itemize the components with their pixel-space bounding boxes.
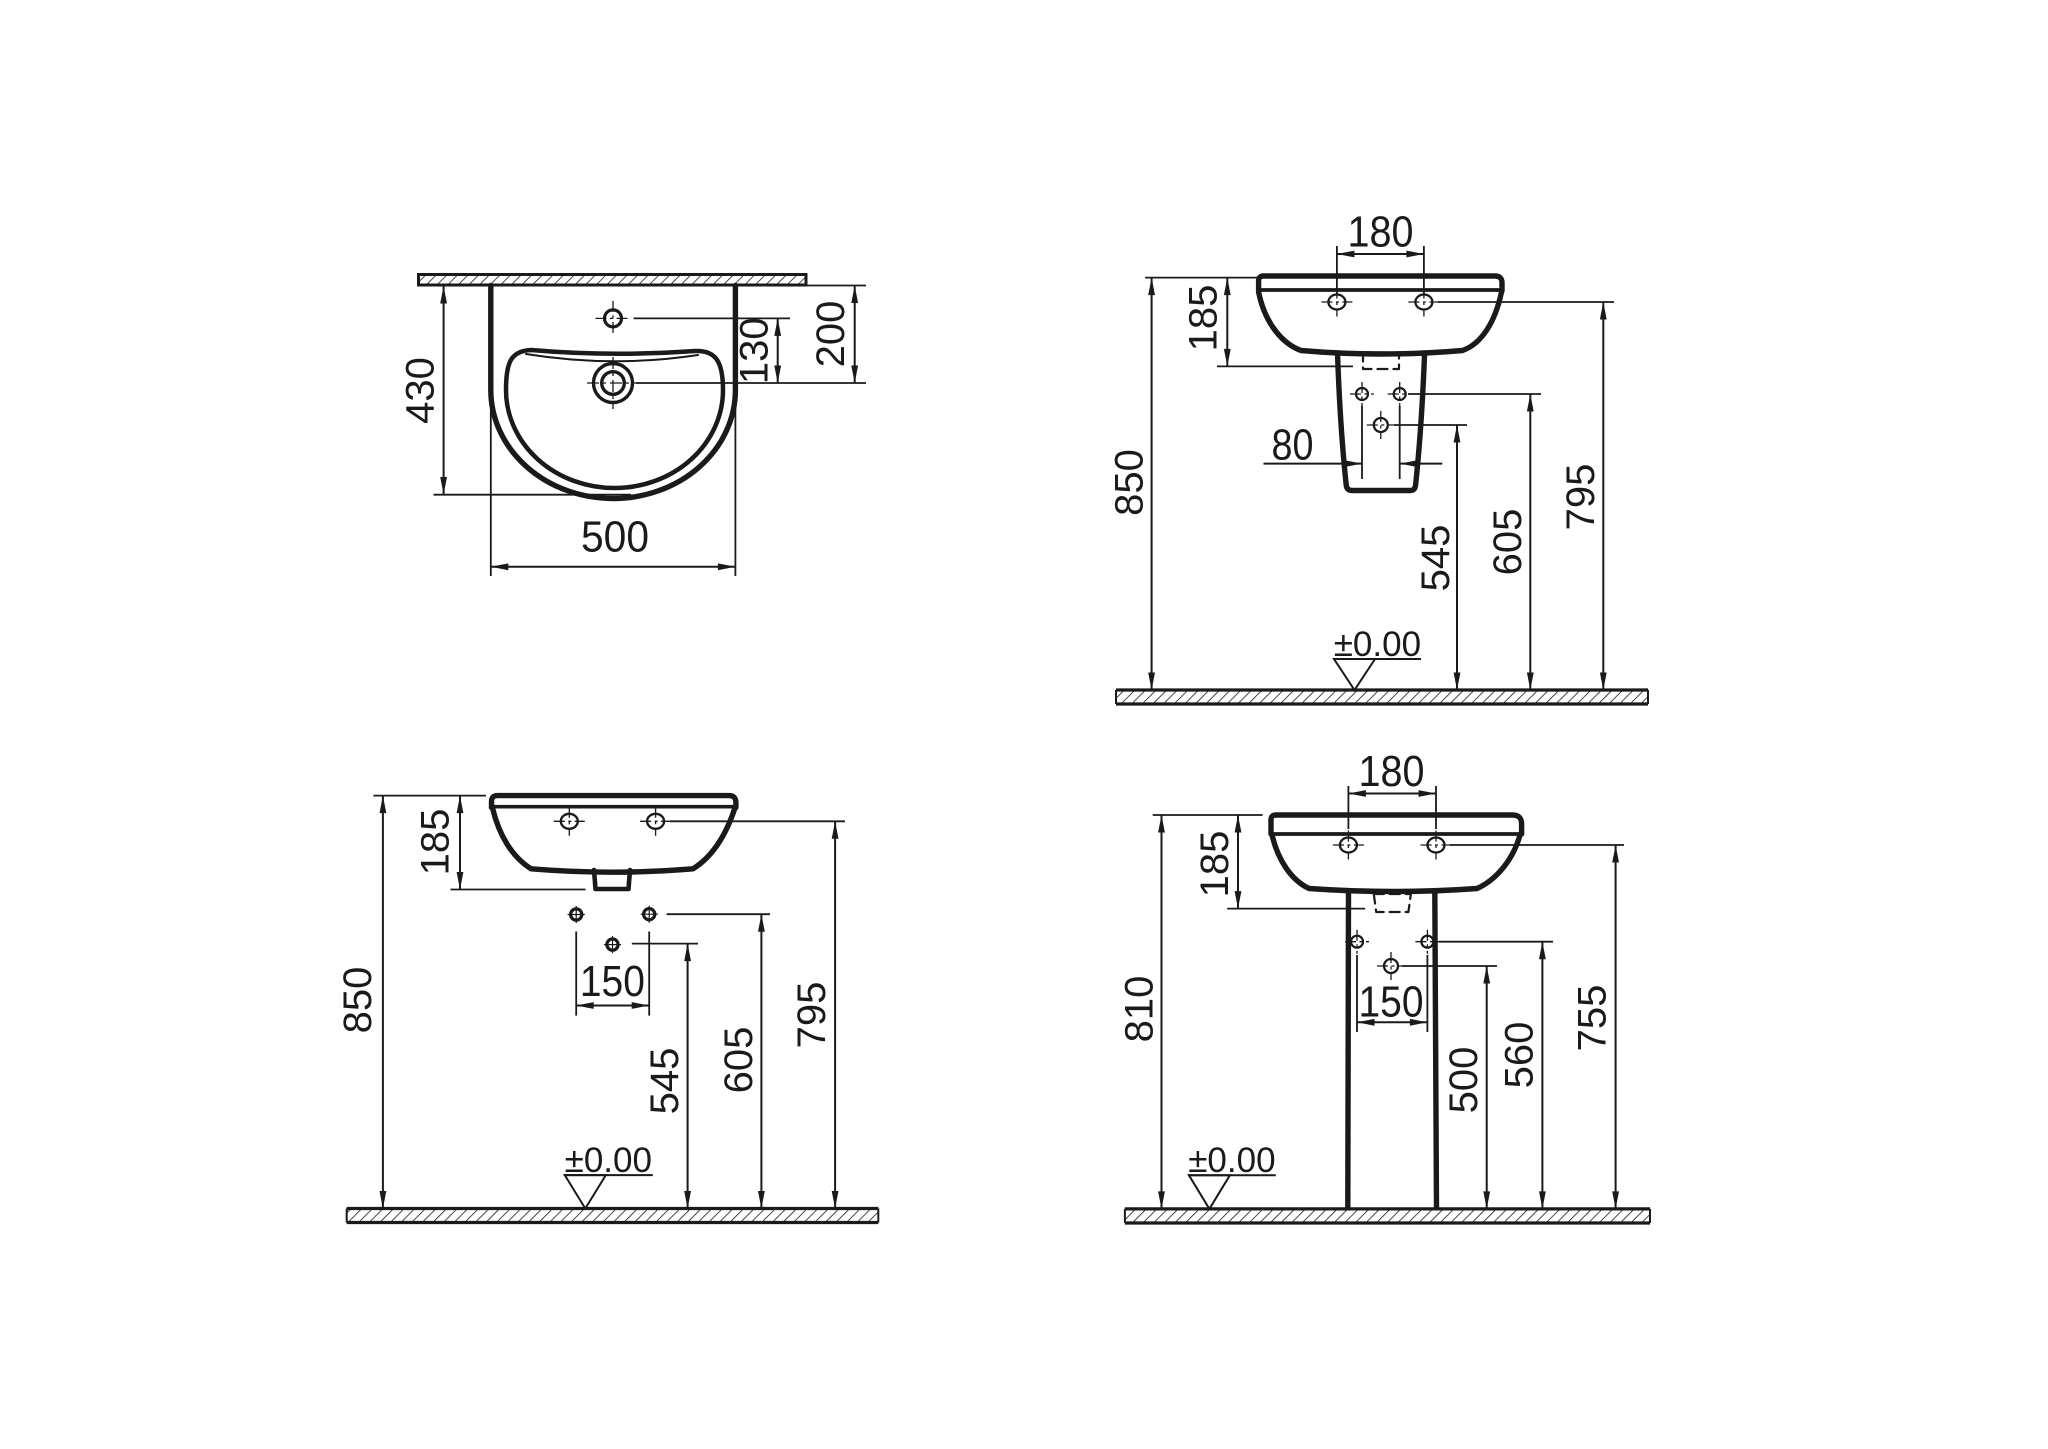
svg-text:180: 180	[1359, 747, 1425, 796]
svg-text:500: 500	[581, 513, 649, 562]
svg-text:200: 200	[809, 301, 853, 368]
svg-text:185: 185	[1193, 831, 1237, 898]
svg-text:180: 180	[1348, 208, 1414, 257]
svg-text:795: 795	[790, 982, 834, 1049]
svg-text:850: 850	[336, 967, 380, 1034]
svg-text:810: 810	[1118, 976, 1162, 1043]
svg-text:150: 150	[580, 957, 645, 1006]
svg-text:560: 560	[1498, 1022, 1542, 1089]
svg-text:605: 605	[1486, 509, 1530, 576]
svg-text:500: 500	[1442, 1047, 1486, 1114]
svg-text:130: 130	[733, 317, 777, 384]
svg-text:150: 150	[1359, 978, 1424, 1027]
svg-text:430: 430	[399, 357, 443, 424]
svg-text:850: 850	[1108, 449, 1152, 516]
svg-text:185: 185	[1182, 285, 1226, 352]
svg-text:185: 185	[414, 809, 458, 876]
svg-text:80: 80	[1272, 421, 1314, 470]
svg-text:795: 795	[1559, 464, 1603, 531]
svg-text:605: 605	[717, 1027, 761, 1094]
svg-text:545: 545	[1414, 525, 1458, 592]
svg-text:545: 545	[643, 1048, 687, 1115]
svg-text:755: 755	[1571, 985, 1615, 1052]
